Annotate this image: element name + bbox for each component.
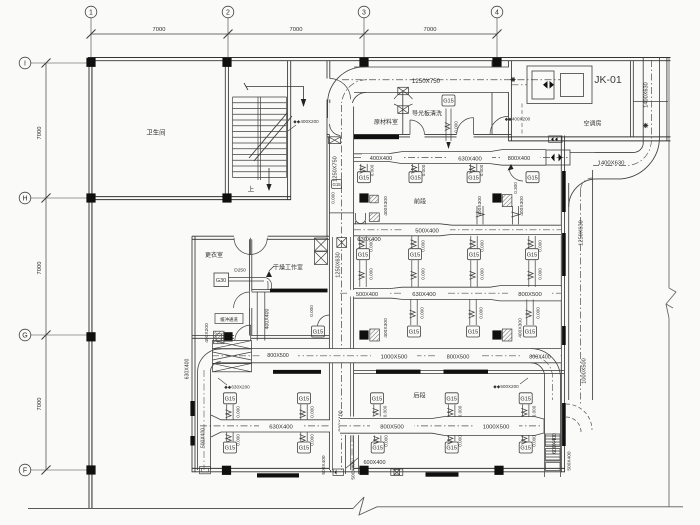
svg-text:0.000: 0.000 [457,405,462,417]
svg-text:630X400: 630X400 [458,156,482,162]
svg-text:缓冲通道: 缓冲通道 [220,316,238,323]
svg-text:0.000: 0.000 [310,434,315,446]
svg-text:0.000: 0.000 [536,307,541,319]
svg-text:◆◆500X200: ◆◆500X200 [493,384,519,389]
svg-text:7000: 7000 [37,262,43,275]
svg-text:630X400: 630X400 [412,292,436,298]
svg-text:G15: G15 [525,330,536,336]
svg-text:G15: G15 [359,175,370,181]
svg-text:G30: G30 [216,278,226,284]
svg-text:原材料室: 原材料室 [374,118,398,126]
svg-text:7000: 7000 [37,398,43,411]
svg-text:400X400: 400X400 [370,156,392,162]
svg-text:G15: G15 [410,252,421,258]
svg-text:◆◆400X200: ◆◆400X200 [505,117,531,122]
svg-text:0.000: 0.000 [480,240,485,252]
svg-text:G15: G15 [446,397,457,403]
svg-text:500X400: 500X400 [567,451,573,471]
svg-text:800X500: 800X500 [380,425,404,431]
svg-text:2: 2 [226,10,230,17]
svg-text:0.000: 0.000 [236,434,241,446]
svg-text:400X400: 400X400 [264,309,270,330]
svg-text:0.000: 0.000 [420,307,425,319]
svg-text:0.000: 0.000 [454,121,459,133]
svg-text:600X400: 600X400 [552,433,558,454]
svg-text:1400X630: 1400X630 [644,82,650,108]
svg-text:400X300: 400X300 [477,196,483,216]
svg-text:JK-01: JK-01 [594,74,622,86]
svg-text:G15: G15 [225,397,236,403]
svg-text:500X400: 500X400 [321,455,327,475]
svg-text:◆◆630X200: ◆◆630X200 [224,385,250,390]
svg-text:0.000: 0.000 [531,405,536,417]
svg-text:G15: G15 [468,330,479,336]
svg-text:800X500: 800X500 [518,292,542,298]
svg-text:G15: G15 [443,99,454,105]
svg-text:后段: 后段 [413,392,425,400]
svg-text:1400X630: 1400X630 [598,161,626,167]
svg-text:800X500: 800X500 [447,355,470,361]
svg-text:G15: G15 [313,330,324,336]
svg-text:1250X750: 1250X750 [333,156,339,182]
svg-text:800X400: 800X400 [508,156,530,162]
svg-text:G15: G15 [372,397,383,403]
svg-text:400X300: 400X300 [518,318,524,338]
svg-text:0.000: 0.000 [236,406,241,418]
svg-text:7000: 7000 [424,27,437,33]
svg-text:400X300: 400X300 [519,196,525,216]
svg-text:G15: G15 [299,446,310,452]
svg-text:空调房: 空调房 [583,120,601,128]
svg-text:400X300: 400X300 [383,318,389,338]
svg-text:0.000: 0.000 [479,307,484,319]
svg-text:500X400: 500X400 [351,460,357,480]
svg-text:1250X630: 1250X630 [578,220,584,246]
svg-text:0.000: 0.000 [383,405,388,417]
svg-text:630X400: 630X400 [185,359,191,380]
svg-text:G15: G15 [358,252,369,258]
svg-text:400X300: 400X300 [383,196,389,216]
svg-text:G15: G15 [469,252,480,258]
svg-text:D250: D250 [234,268,246,274]
svg-text:G15: G15 [446,446,457,452]
svg-text:G15: G15 [468,175,479,181]
svg-text:0.000: 0.000 [421,268,426,280]
svg-text:500X400: 500X400 [356,292,378,298]
svg-text:1000X500: 1000X500 [581,358,587,384]
svg-text:G15: G15 [409,330,420,336]
svg-text:0.000: 0.000 [370,164,375,176]
svg-text:0.000: 0.000 [538,240,543,252]
svg-text:I: I [24,61,26,68]
svg-text:G15: G15 [225,446,236,452]
svg-text:400X200: 400X200 [204,323,210,343]
svg-text:1250X750: 1250X750 [412,78,441,85]
svg-text:0.000: 0.000 [538,268,543,280]
svg-text:G15: G15 [372,446,383,452]
svg-text:G15: G15 [332,182,341,187]
svg-text:7000: 7000 [153,27,166,33]
svg-text:F: F [23,468,27,475]
svg-text:630X400: 630X400 [269,425,293,431]
svg-text:7000: 7000 [290,27,303,33]
svg-text:3: 3 [362,10,366,17]
svg-text:0.000: 0.000 [369,240,374,252]
svg-text:7000: 7000 [37,127,43,140]
svg-text:0.000: 0.000 [331,192,336,204]
svg-text:G15: G15 [299,397,310,403]
svg-text:0.000: 0.000 [457,435,462,447]
svg-text:1000X500: 1000X500 [381,355,409,361]
svg-text:◆◆400X200: ◆◆400X200 [293,119,319,124]
svg-text:0.000: 0.000 [480,268,485,280]
svg-text:1000X500: 1000X500 [483,424,511,430]
svg-text:G15: G15 [520,397,531,403]
svg-text:600X400: 600X400 [363,460,385,466]
svg-text:G15: G15 [527,252,538,258]
svg-text:G15: G15 [410,175,421,181]
svg-text:0.300: 0.300 [513,182,518,194]
svg-text:1250X630: 1250X630 [336,252,342,278]
svg-text:4: 4 [495,10,499,17]
svg-text:800X400: 800X400 [529,354,551,360]
svg-text:0.000: 0.000 [421,240,426,252]
svg-text:0.000: 0.000 [369,268,374,280]
svg-text:0.000: 0.000 [479,164,484,176]
svg-text:0.000: 0.000 [531,435,536,447]
svg-text:更衣室: 更衣室 [205,251,223,259]
svg-text:干燥工作室: 干燥工作室 [273,264,303,272]
svg-text:500X400: 500X400 [201,428,207,448]
svg-text:500X400: 500X400 [415,228,439,234]
svg-text:0.000: 0.000 [309,305,314,317]
svg-text:800X500: 800X500 [267,353,289,359]
svg-text:导光板清洗: 导光板清洗 [412,110,442,118]
svg-text:H: H [22,196,27,203]
svg-text:上: 上 [248,184,255,193]
svg-text:G15: G15 [520,446,531,452]
svg-text:1: 1 [89,10,93,17]
svg-text:0.000: 0.000 [310,406,315,418]
svg-text:G15: G15 [527,175,538,181]
svg-text:卫生间: 卫生间 [146,128,165,137]
svg-text:0.000: 0.000 [383,435,388,447]
svg-text:G: G [22,333,27,340]
svg-text:前段: 前段 [414,198,426,206]
svg-text:0.000: 0.000 [421,164,426,176]
